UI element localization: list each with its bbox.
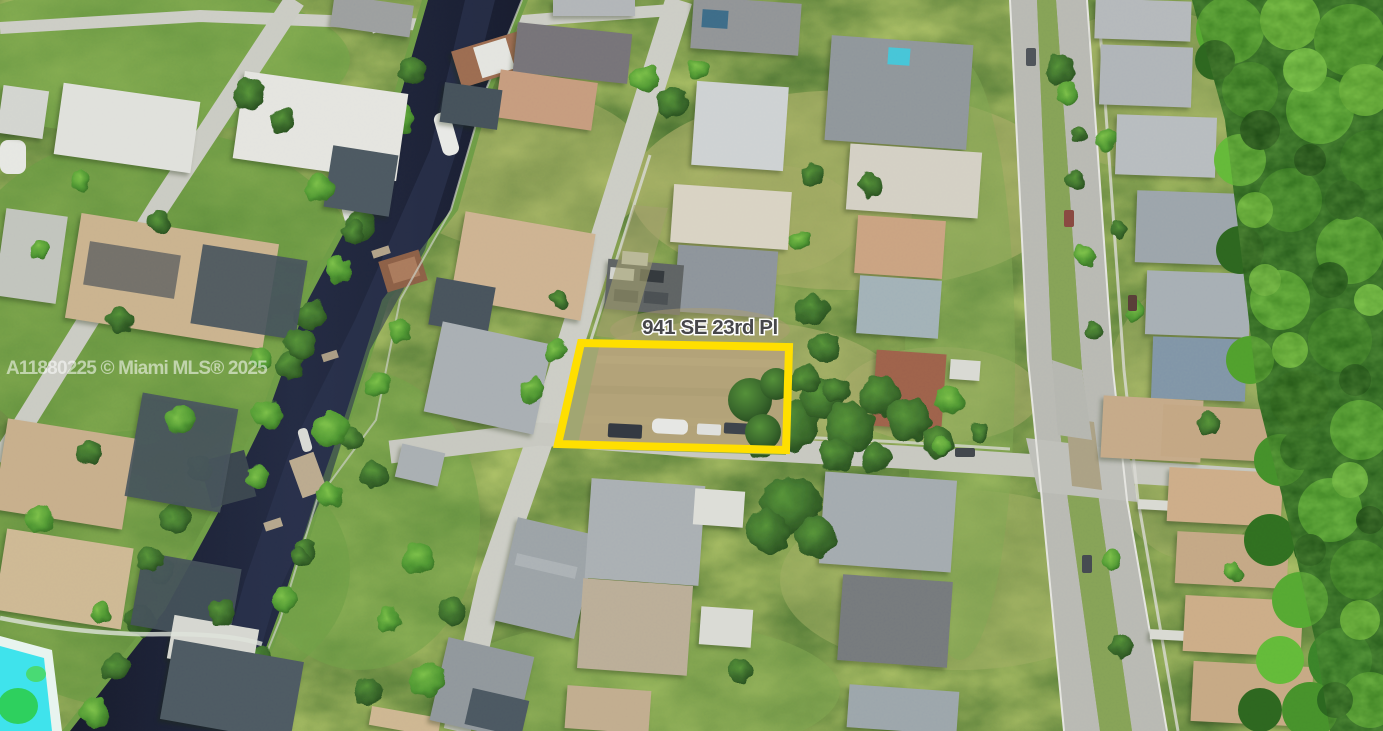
svg-text:A11880225 © Miami MLS® 2025: A11880225 © Miami MLS® 2025 bbox=[6, 358, 268, 379]
svg-text:941 SE 23rd Pl: 941 SE 23rd Pl bbox=[642, 316, 778, 339]
